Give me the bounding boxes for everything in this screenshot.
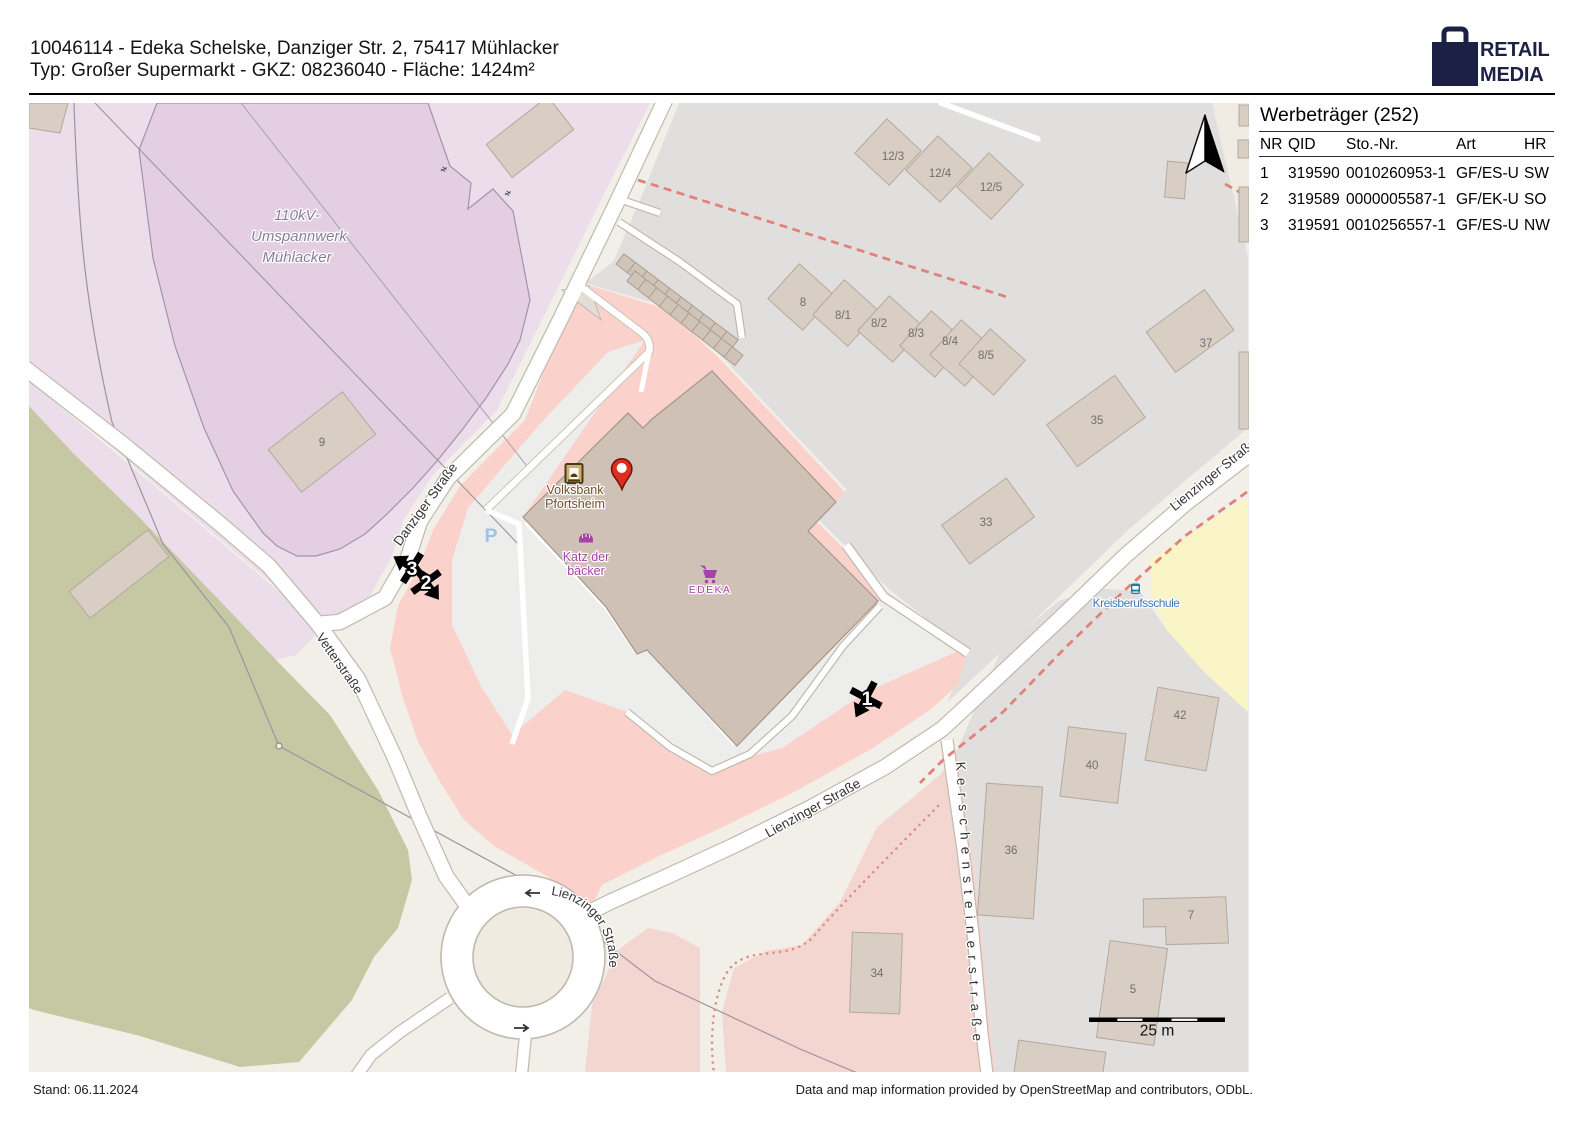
svg-text:8/3: 8/3 <box>908 328 924 340</box>
svg-text:Pfortsheim: Pfortsheim <box>545 497 605 511</box>
svg-text:8/2: 8/2 <box>871 318 887 330</box>
svg-text:42: 42 <box>1174 710 1187 722</box>
svg-text:3: 3 <box>407 558 418 580</box>
svg-text:33: 33 <box>980 517 993 529</box>
svg-text:EDEKA: EDEKA <box>689 584 732 596</box>
svg-text:Volksbank: Volksbank <box>547 483 605 497</box>
svg-text:8/5: 8/5 <box>978 350 994 362</box>
svg-text:35: 35 <box>1091 415 1104 427</box>
svg-text:37: 37 <box>1200 338 1213 350</box>
svg-text:34: 34 <box>871 968 884 980</box>
svg-text:40: 40 <box>1086 760 1099 772</box>
svg-text:8: 8 <box>800 297 806 309</box>
svg-text:12/5: 12/5 <box>980 182 1002 194</box>
svg-text:25 m: 25 m <box>1140 1023 1174 1040</box>
svg-text:5: 5 <box>1130 984 1136 996</box>
svg-text:12/3: 12/3 <box>882 151 904 163</box>
svg-text:8/1: 8/1 <box>835 310 851 322</box>
svg-text:2: 2 <box>421 572 432 594</box>
svg-text:7: 7 <box>1188 910 1194 922</box>
svg-text:Katz der: Katz der <box>563 550 610 564</box>
svg-text:8/4: 8/4 <box>942 336 959 348</box>
svg-text:110kV-: 110kV- <box>274 207 320 224</box>
svg-text:Umspannwerk: Umspannwerk <box>251 228 348 245</box>
svg-text:Kreisberufsschule: Kreisberufsschule <box>1093 596 1181 610</box>
svg-text:bäcker: bäcker <box>567 564 605 578</box>
svg-text:9: 9 <box>319 437 325 449</box>
svg-text:Mühlacker: Mühlacker <box>262 249 332 266</box>
svg-text:1: 1 <box>862 688 873 710</box>
svg-text:12/4: 12/4 <box>929 168 952 180</box>
svg-text:36: 36 <box>1005 845 1018 857</box>
svg-text:P: P <box>484 525 497 547</box>
